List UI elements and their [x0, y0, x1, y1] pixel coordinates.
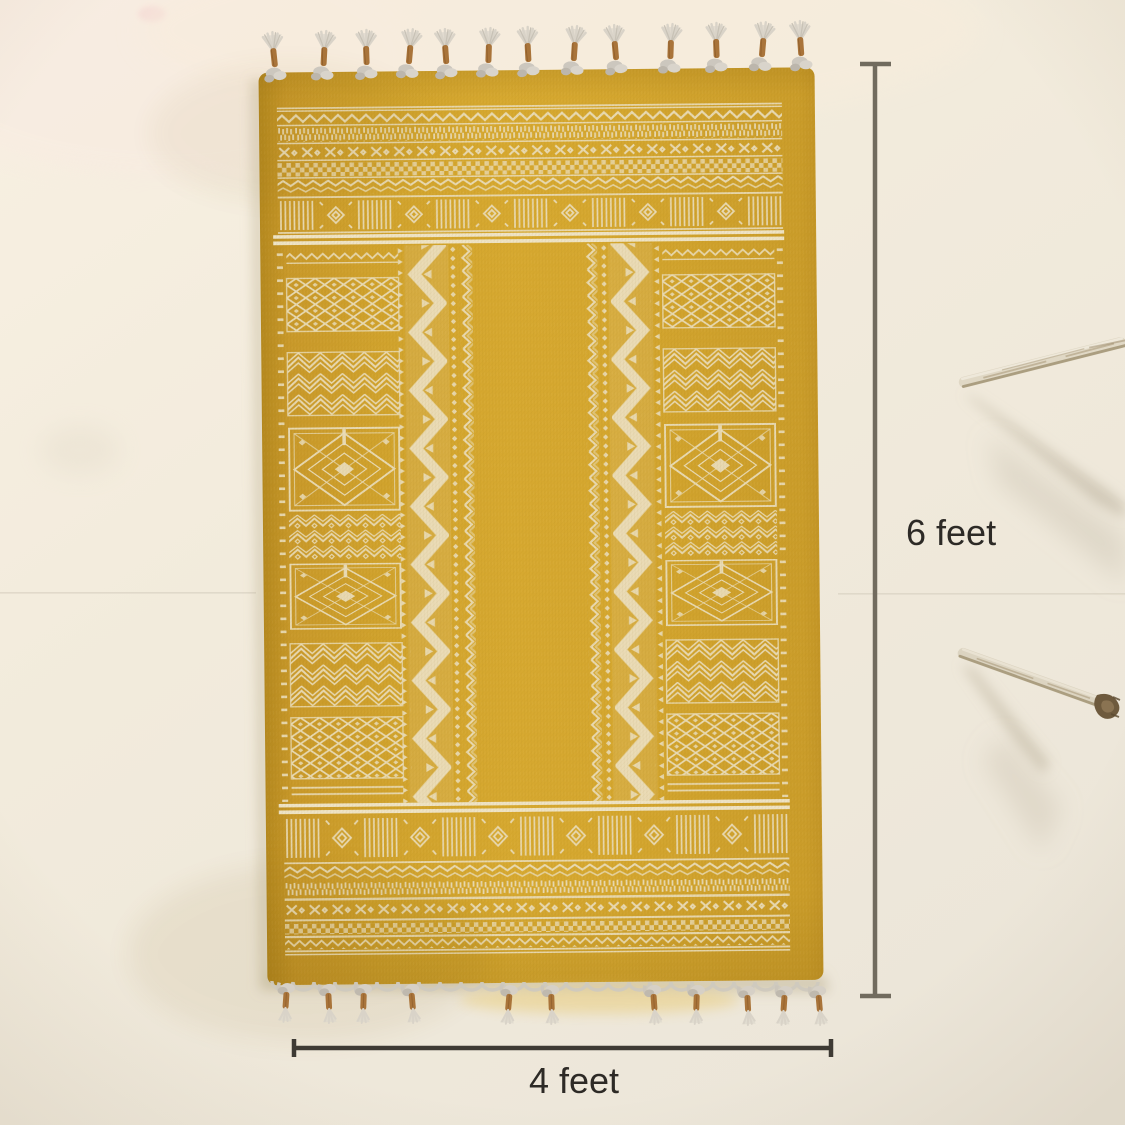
svg-text:6 feet: 6 feet — [906, 512, 996, 553]
svg-text:4 feet: 4 feet — [529, 1060, 619, 1101]
